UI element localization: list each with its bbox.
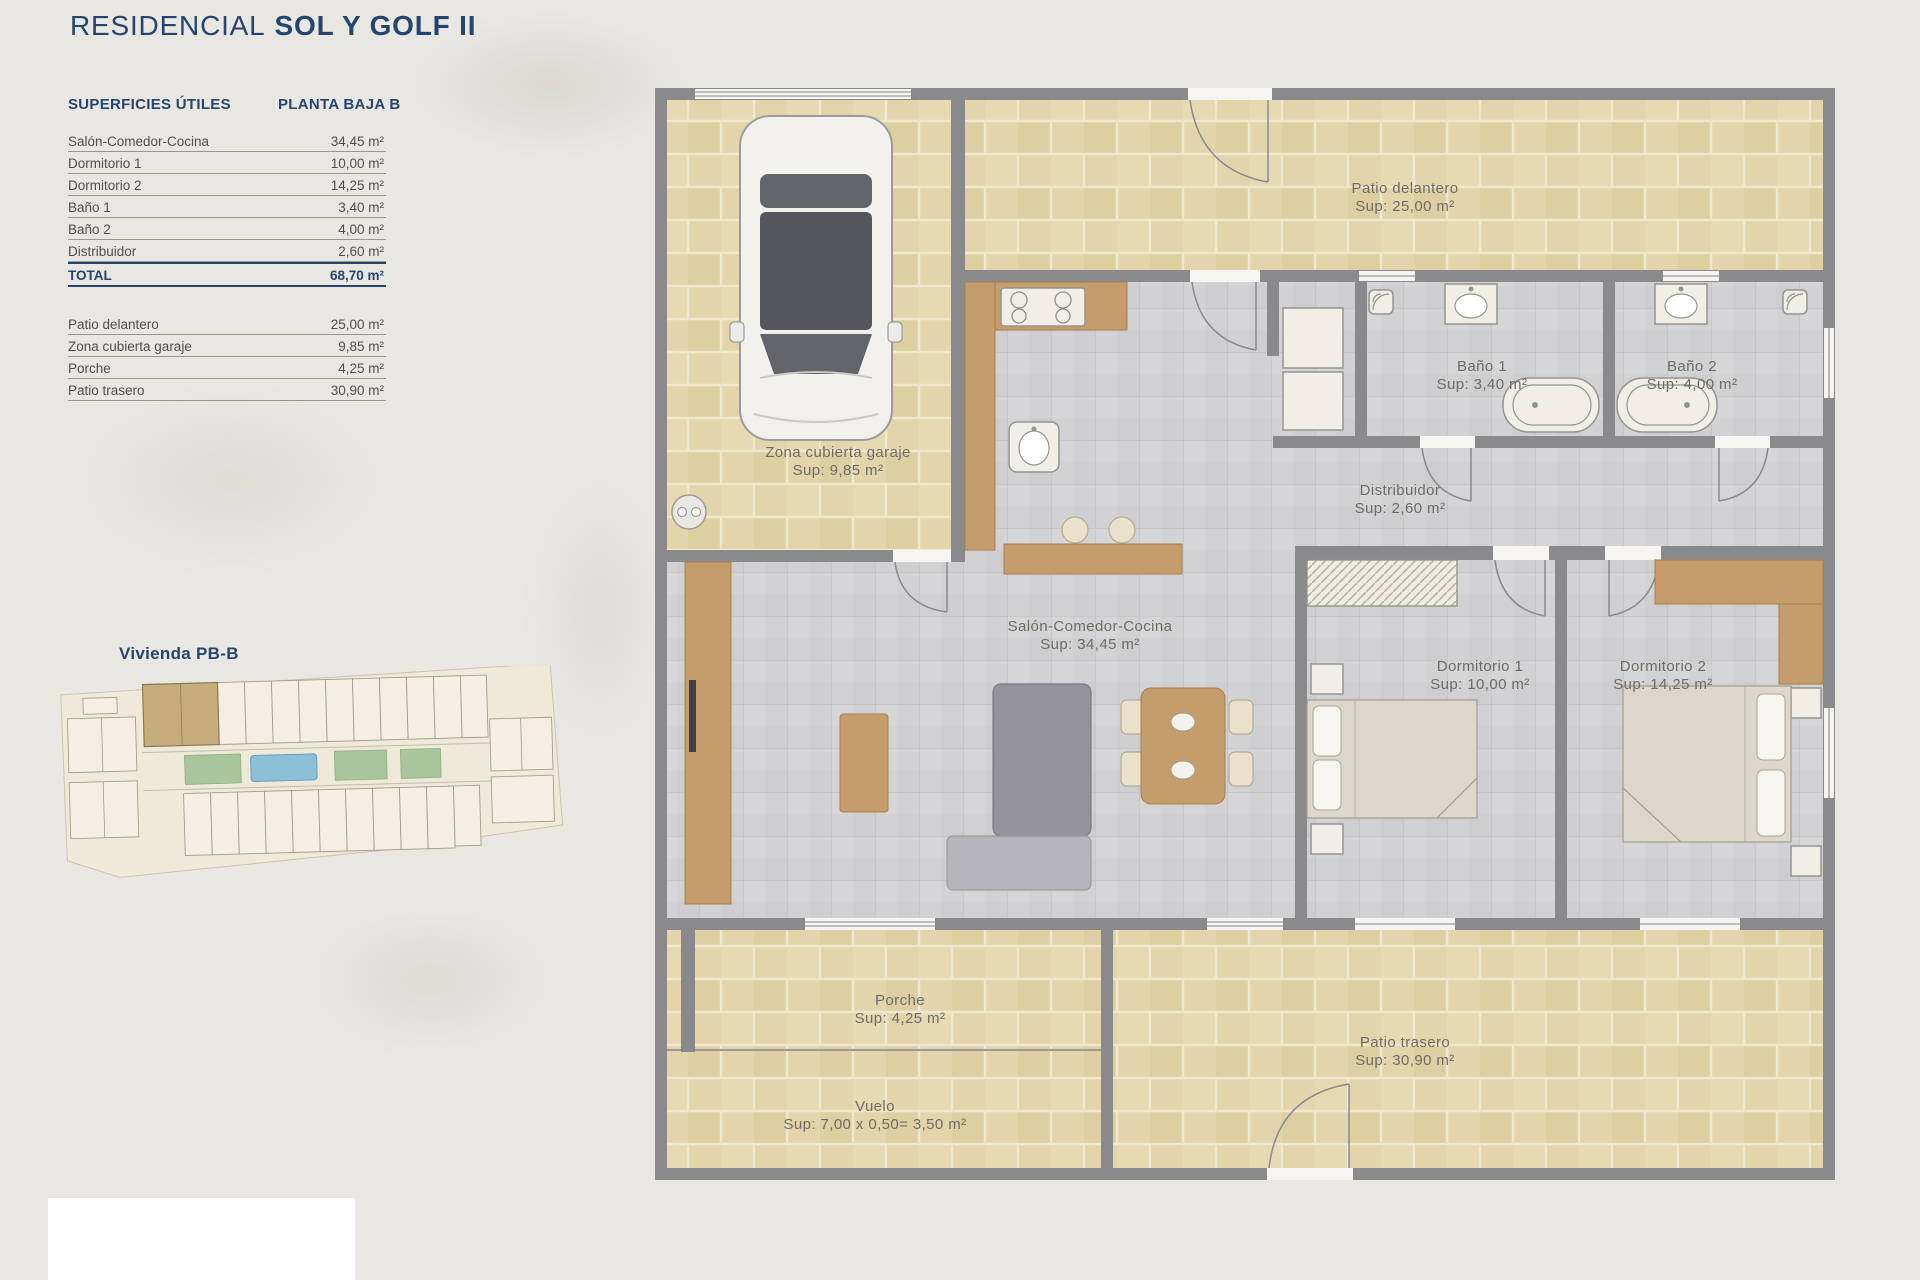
area-row: Porche4,25 m²: [68, 357, 386, 379]
room-name: Patio trasero: [1315, 1034, 1495, 1052]
total-label: TOTAL: [68, 268, 112, 283]
wardrobe: [1307, 560, 1457, 606]
wardrobe-desk: [1655, 560, 1823, 604]
paper-stain: [300, 900, 560, 1060]
tv: [689, 680, 696, 752]
area-value: 3,40 m²: [338, 200, 384, 215]
site-plan-title: Vivienda PB-B: [119, 644, 239, 664]
room-sup: Sup: 4,00 m²: [1602, 376, 1782, 394]
room-label-patio-trasero: Patio trasero Sup: 30,90 m²: [1315, 1034, 1495, 1069]
bed-1: [1307, 700, 1477, 818]
room-name: Vuelo: [750, 1098, 1000, 1116]
area-row: Dormitorio 110,00 m²: [68, 152, 386, 174]
area-value: 34,45 m²: [331, 134, 384, 149]
bedroom-1-furniture: [1307, 560, 1477, 854]
area-label: Dormitorio 1: [68, 156, 142, 171]
room-label-vuelo: Vuelo Sup: 7,00 x 0,50= 3,50 m²: [750, 1098, 1000, 1133]
sofa-chaise: [947, 836, 1091, 890]
room-label-garaje: Zona cubierta garaje Sup: 9,85 m²: [718, 444, 958, 479]
area-row: Zona cubierta garaje9,85 m²: [68, 335, 386, 357]
room-sup: Sup: 3,40 m²: [1392, 376, 1572, 394]
room-name: Porche: [810, 992, 990, 1010]
room-sup: Sup: 7,00 x 0,50= 3,50 m²: [750, 1116, 1000, 1134]
car-mirror-left: [730, 322, 744, 342]
car-top-view: [730, 116, 902, 440]
area-value: 4,00 m²: [338, 222, 384, 237]
room-sup: Sup: 9,85 m²: [718, 462, 958, 480]
room-name: Baño 1: [1392, 358, 1572, 376]
areas-table-header: SUPERFICIES ÚTILES PLANTA BAJA B: [68, 96, 386, 122]
area-value: 4,25 m²: [338, 361, 384, 376]
room-label-distribuidor: Distribuidor Sup: 2,60 m²: [1310, 482, 1490, 517]
area-label: Distribuidor: [68, 244, 136, 259]
area-value: 14,25 m²: [331, 178, 384, 193]
room-name: Baño 2: [1602, 358, 1782, 376]
kitchen-peninsula: [1004, 544, 1182, 574]
nightstand: [1791, 688, 1821, 718]
area-row: Patio delantero25,00 m²: [68, 313, 386, 335]
room-label-dormitorio-1: Dormitorio 1 Sup: 10,00 m²: [1390, 658, 1570, 693]
floor-plan-page: RESIDENCIALSOL Y GOLF II SUPERFICIES ÚTI…: [0, 0, 1920, 1280]
area-label: Patio delantero: [68, 317, 159, 332]
entry-patio-floor: [965, 100, 1273, 270]
area-total-row: TOTAL68,70 m²: [68, 262, 386, 287]
car-mirror-right: [888, 322, 902, 342]
area-value: 2,60 m²: [338, 244, 384, 259]
floor-drain: [672, 495, 706, 529]
sideboard: [840, 714, 888, 812]
room-label-bano-2: Baño 2 Sup: 4,00 m²: [1602, 358, 1782, 393]
site-plan-thumbnail: [55, 666, 565, 878]
area-value: 30,90 m²: [331, 383, 384, 398]
area-row: Baño 24,00 m²: [68, 218, 386, 240]
area-value: 10,00 m²: [331, 156, 384, 171]
room-sup: Sup: 25,00 m²: [1285, 198, 1525, 216]
area-label: Baño 1: [68, 200, 111, 215]
area-label: Baño 2: [68, 222, 111, 237]
room-name: Salón-Comedor-Cocina: [970, 618, 1210, 636]
area-label: Patio trasero: [68, 383, 145, 398]
paper-stain: [60, 380, 400, 580]
room-name: Patio delantero: [1285, 180, 1525, 198]
room-name: Distribuidor: [1310, 482, 1490, 500]
page-title: RESIDENCIALSOL Y GOLF II: [70, 10, 476, 42]
room-sup: Sup: 30,90 m²: [1315, 1052, 1495, 1070]
area-row: Distribuidor2,60 m²: [68, 240, 386, 262]
room-sup: Sup: 14,25 m²: [1573, 676, 1753, 694]
room-sup: Sup: 10,00 m²: [1390, 676, 1570, 694]
room-sup: Sup: 34,45 m²: [970, 636, 1210, 654]
areas-table: SUPERFICIES ÚTILES PLANTA BAJA B Salón-C…: [68, 96, 386, 401]
header-planta: PLANTA BAJA B: [278, 96, 401, 113]
logo-placeholder: [48, 1198, 355, 1280]
floor-plan: Patio delantero Sup: 25,00 m² Baño 1 Sup…: [655, 88, 1835, 1180]
title-prefix: RESIDENCIAL: [70, 10, 266, 41]
room-name: Zona cubierta garaje: [718, 444, 958, 462]
room-label-patio-delantero: Patio delantero Sup: 25,00 m²: [1285, 180, 1525, 215]
sofa: [993, 684, 1091, 836]
room-name: Dormitorio 2: [1573, 658, 1753, 676]
room-sup: Sup: 2,60 m²: [1310, 500, 1490, 518]
nightstand: [1311, 824, 1343, 854]
title-name: SOL Y GOLF II: [275, 10, 477, 41]
area-row: Salón-Comedor-Cocina34,45 m²: [68, 130, 386, 152]
stool: [1062, 517, 1088, 543]
area-value: 25,00 m²: [331, 317, 384, 332]
room-label-bano-1: Baño 1 Sup: 3,40 m²: [1392, 358, 1572, 393]
area-row: Dormitorio 214,25 m²: [68, 174, 386, 196]
room-sup: Sup: 4,25 m²: [810, 1010, 990, 1028]
site-units-top-row: [217, 675, 488, 744]
area-label: Zona cubierta garaje: [68, 339, 192, 354]
area-label: Salón-Comedor-Cocina: [68, 134, 209, 149]
room-label-dormitorio-2: Dormitorio 2 Sup: 14,25 m²: [1573, 658, 1753, 693]
header-superficies: SUPERFICIES ÚTILES: [68, 96, 231, 113]
room-name: Dormitorio 1: [1390, 658, 1570, 676]
room-label-porche: Porche Sup: 4,25 m²: [810, 992, 990, 1027]
area-row: Baño 13,40 m²: [68, 196, 386, 218]
total-value: 68,70 m²: [330, 268, 384, 283]
area-value: 9,85 m²: [338, 339, 384, 354]
site-units-bottom-row: [184, 785, 482, 855]
area-label: Porche: [68, 361, 111, 376]
area-label: Dormitorio 2: [68, 178, 142, 193]
nightstand: [1311, 664, 1343, 694]
nightstand: [1791, 846, 1821, 876]
room-label-salon: Salón-Comedor-Cocina Sup: 34,45 m²: [970, 618, 1210, 653]
area-row: Patio trasero30,90 m²: [68, 379, 386, 401]
stool: [1109, 517, 1135, 543]
bed-2: [1623, 686, 1791, 842]
site-pool: [251, 754, 318, 782]
